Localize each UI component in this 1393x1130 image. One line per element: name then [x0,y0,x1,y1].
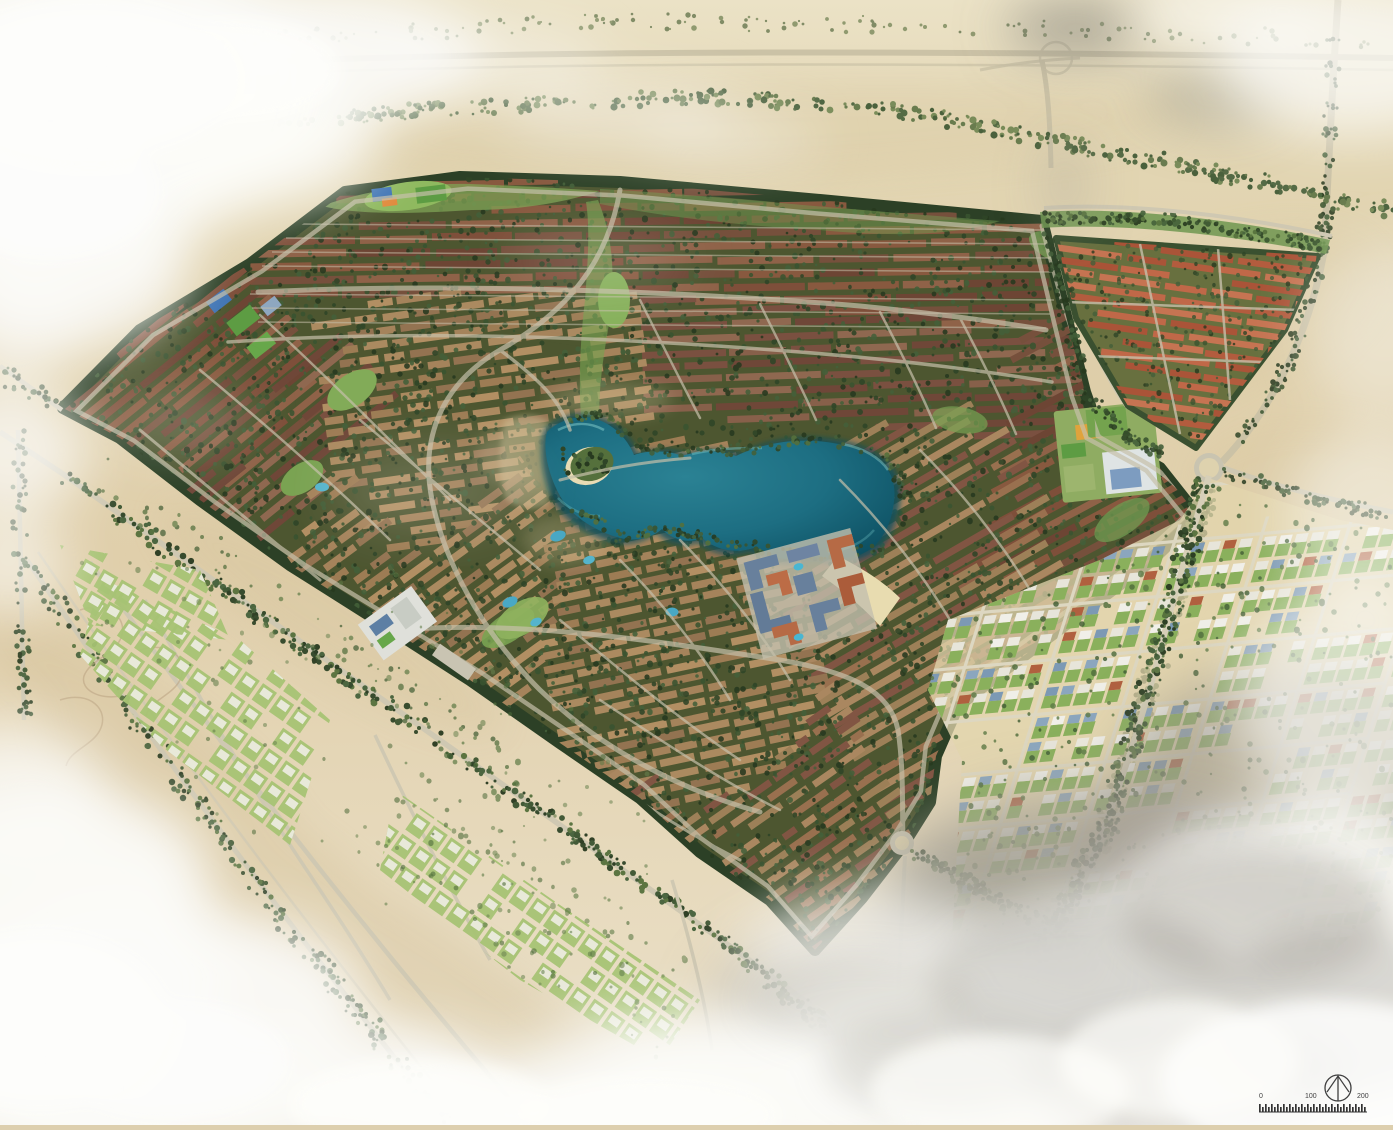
svg-text:0: 0 [1259,1093,1263,1100]
svg-text:100: 100 [1305,1093,1317,1100]
svg-text:200: 200 [1357,1093,1369,1100]
